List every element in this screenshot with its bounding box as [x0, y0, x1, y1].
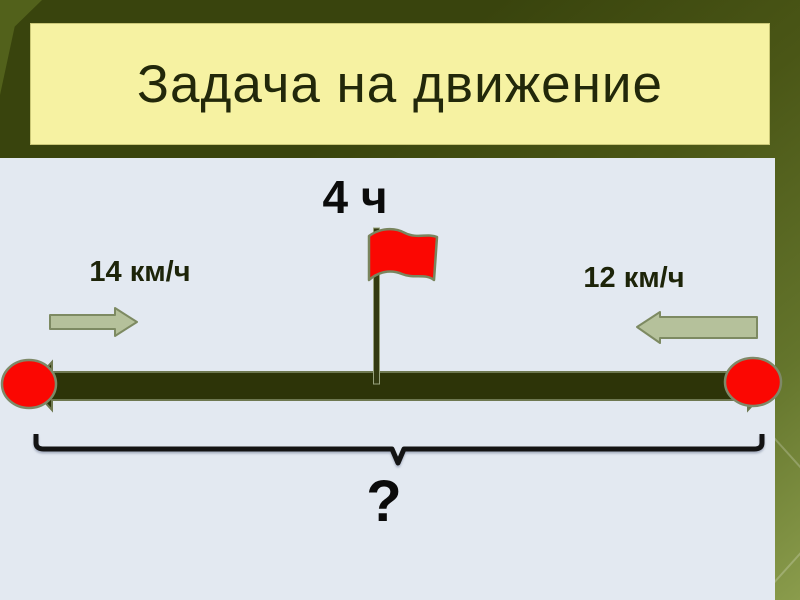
flag-icon: [369, 229, 437, 280]
time-label: 4 ч: [280, 170, 430, 224]
speed-label-right: 12 км/ч: [554, 262, 714, 295]
distance-brace: [36, 434, 762, 463]
presentation-slide: Задача на движение 4 ч 14 км/ч 12 км/ч ?: [0, 0, 800, 600]
road-bar: [30, 362, 770, 410]
arrow-right-icon: [50, 308, 137, 336]
arrow-left-icon: [637, 312, 757, 343]
speed-label-left: 14 км/ч: [60, 256, 220, 289]
distance-question-mark: ?: [334, 468, 434, 535]
endpoint-right: [725, 358, 781, 406]
endpoint-left: [2, 360, 56, 408]
